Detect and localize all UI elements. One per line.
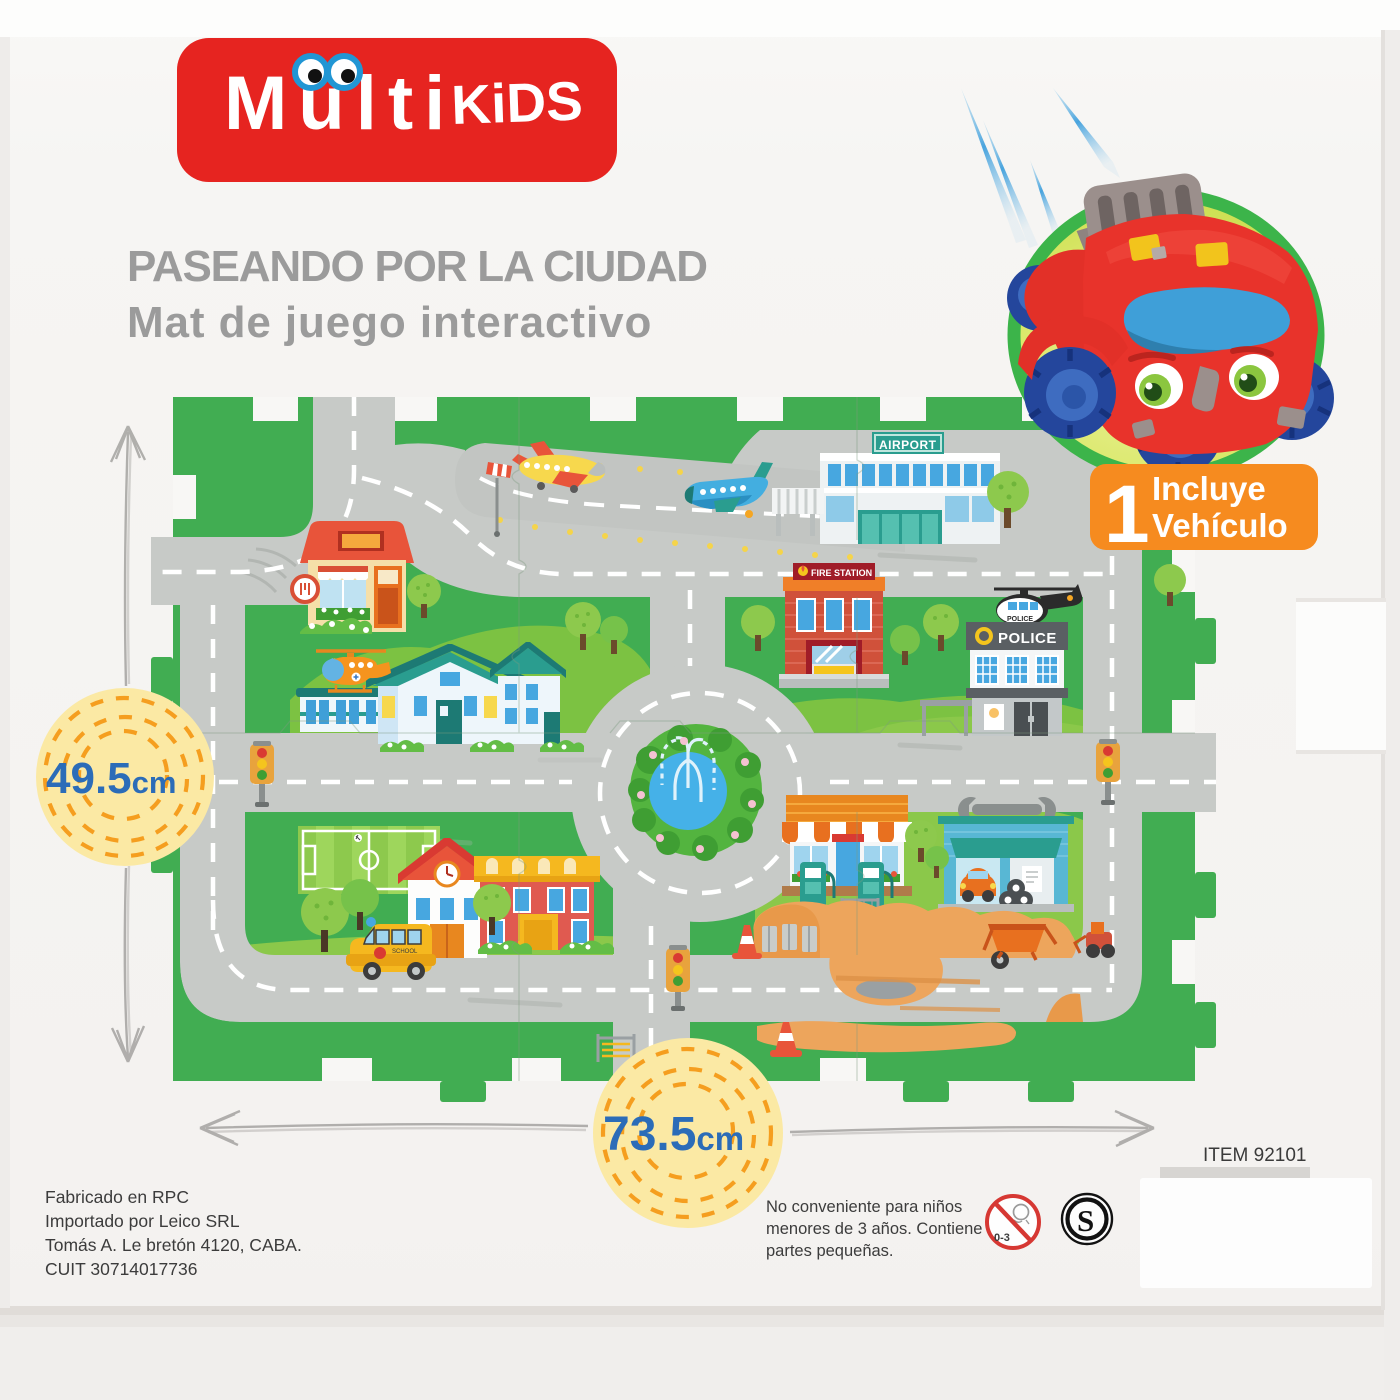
svg-text:POLICE: POLICE [998,630,1057,647]
svg-text:CUIT 30714017736: CUIT 30714017736 [45,1259,197,1279]
svg-text:Incluye: Incluye [1152,470,1266,507]
svg-text:Fabricado en RPC: Fabricado en RPC [45,1187,189,1207]
svg-text:partes pequeñas.: partes pequeñas. [766,1242,894,1260]
svg-text:Mat de juego interactivo: Mat de juego interactivo [127,298,652,347]
svg-text:0-3: 0-3 [994,1232,1010,1244]
svg-text:ITEM 92101: ITEM 92101 [1203,1145,1307,1166]
svg-text:Vehículo: Vehículo [1152,507,1288,544]
svg-text:menores de 3 años. Contiene: menores de 3 años. Contiene [766,1220,982,1238]
svg-text:POLICE: POLICE [1007,616,1033,623]
svg-text:Tomás A. Le bretón 4120, CABA.: Tomás A. Le bretón 4120, CABA. [45,1235,302,1255]
svg-text:SCHOOL: SCHOOL [392,949,418,955]
svg-text:FIRE STATION: FIRE STATION [811,568,872,578]
svg-text:KiDS: KiDS [450,69,583,136]
svg-text:1: 1 [1104,469,1150,560]
svg-text:Importado por Leico SRL: Importado por Leico SRL [45,1211,240,1231]
svg-text:PASEANDO POR LA CIUDAD: PASEANDO POR LA CIUDAD [127,242,707,291]
svg-text:AIRPORT: AIRPORT [879,438,937,452]
svg-text:S: S [1077,1203,1094,1238]
svg-text:No conveniente para niños: No conveniente para niños [766,1198,962,1216]
